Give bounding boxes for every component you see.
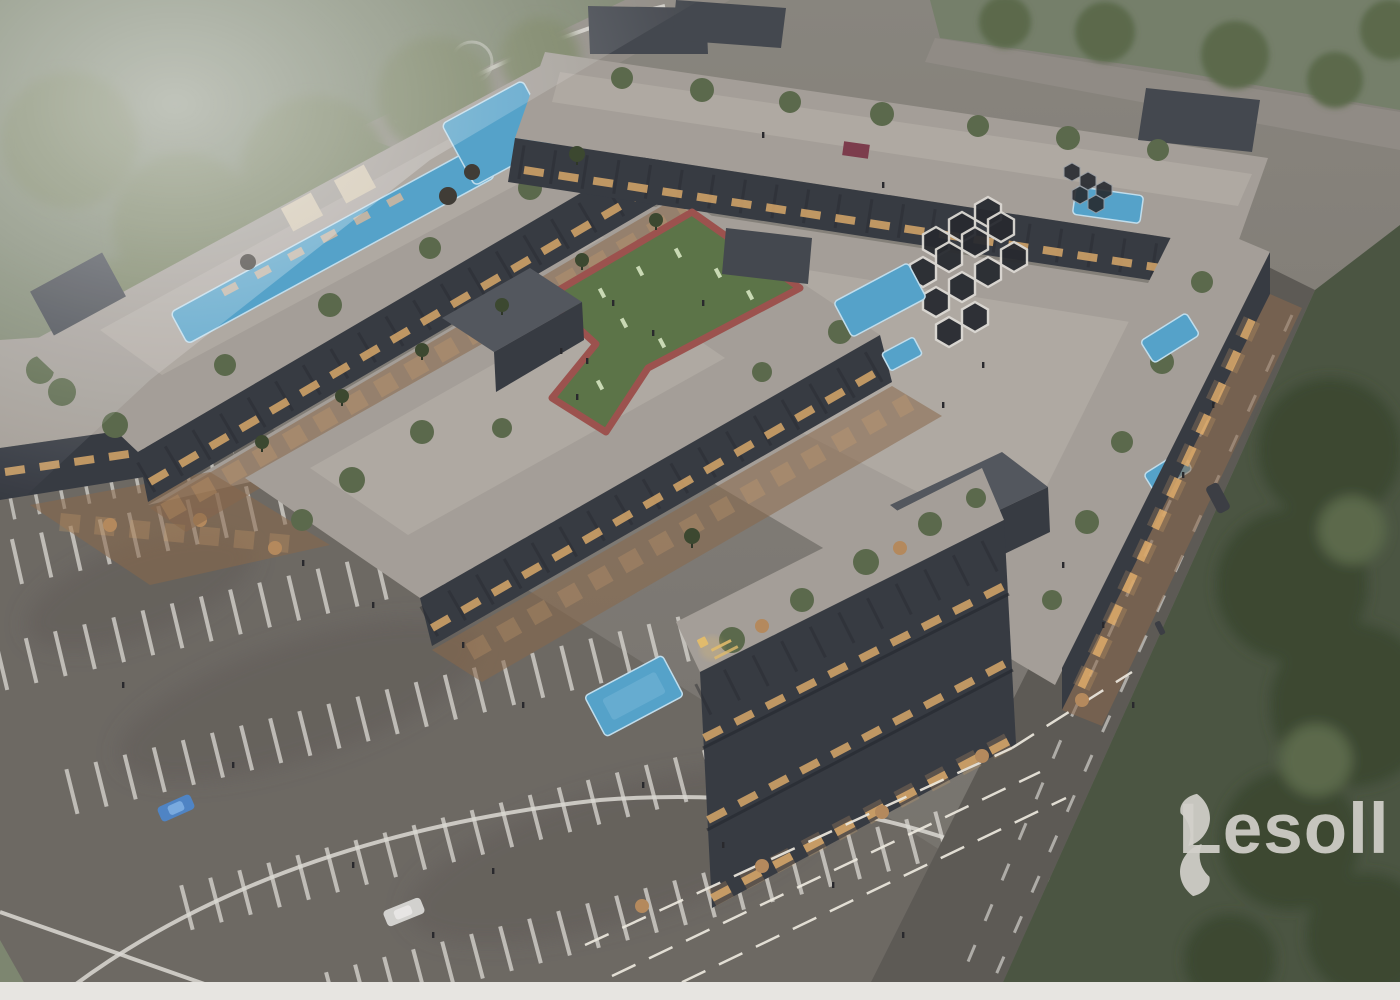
scene-canvas [0, 0, 1400, 1000]
aerial-render: Lesoll [0, 0, 1400, 1000]
dusk-grade-overlay [0, 0, 1400, 1000]
bottom-border-band [0, 982, 1400, 1000]
